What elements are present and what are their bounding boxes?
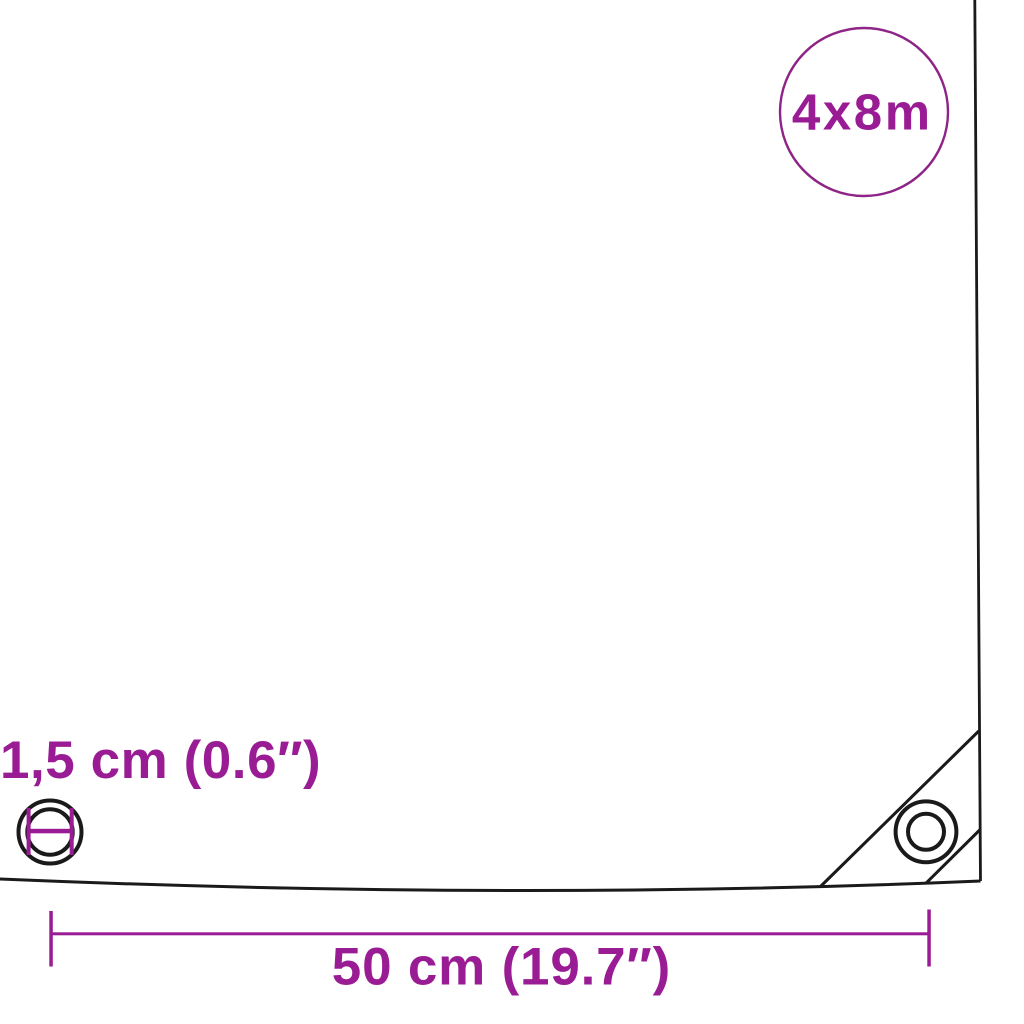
svg-text:50 cm (19.7″): 50 cm (19.7″)	[332, 938, 671, 997]
svg-text:1,5 cm (0.6″): 1,5 cm (0.6″)	[0, 731, 321, 790]
svg-text:4x8m: 4x8m	[792, 84, 933, 141]
